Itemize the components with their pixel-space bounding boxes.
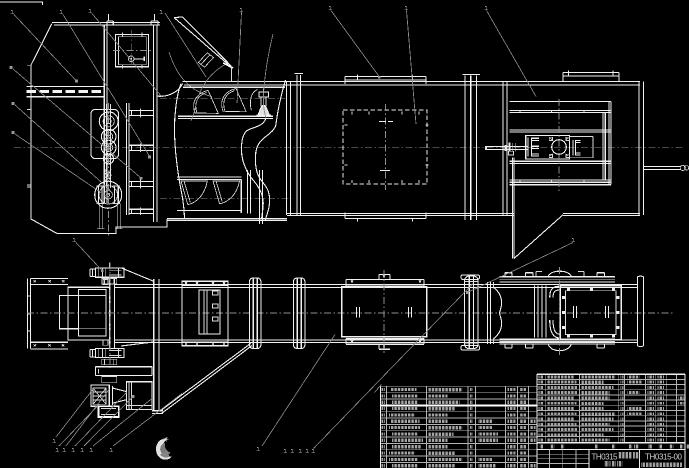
svg-text:TH0315-00: TH0315-00 (645, 453, 683, 462)
svg-text:TH0315: TH0315 (592, 453, 619, 462)
